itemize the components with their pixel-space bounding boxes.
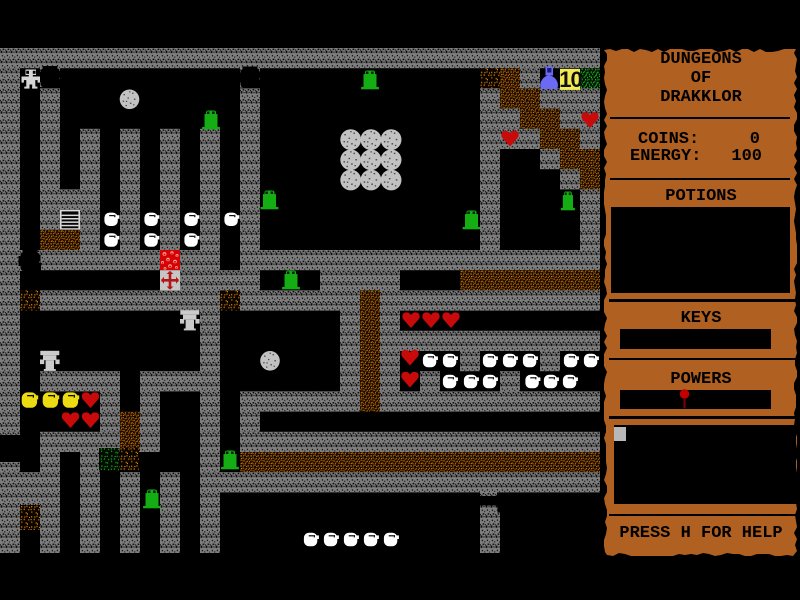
svg-text:10: 10 [559,67,582,92]
